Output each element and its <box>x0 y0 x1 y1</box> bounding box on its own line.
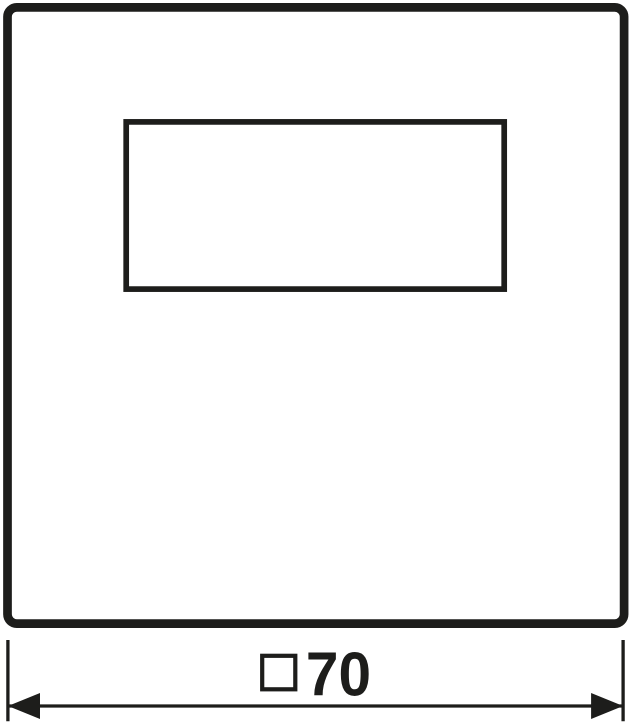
svg-text:70: 70 <box>306 639 371 709</box>
